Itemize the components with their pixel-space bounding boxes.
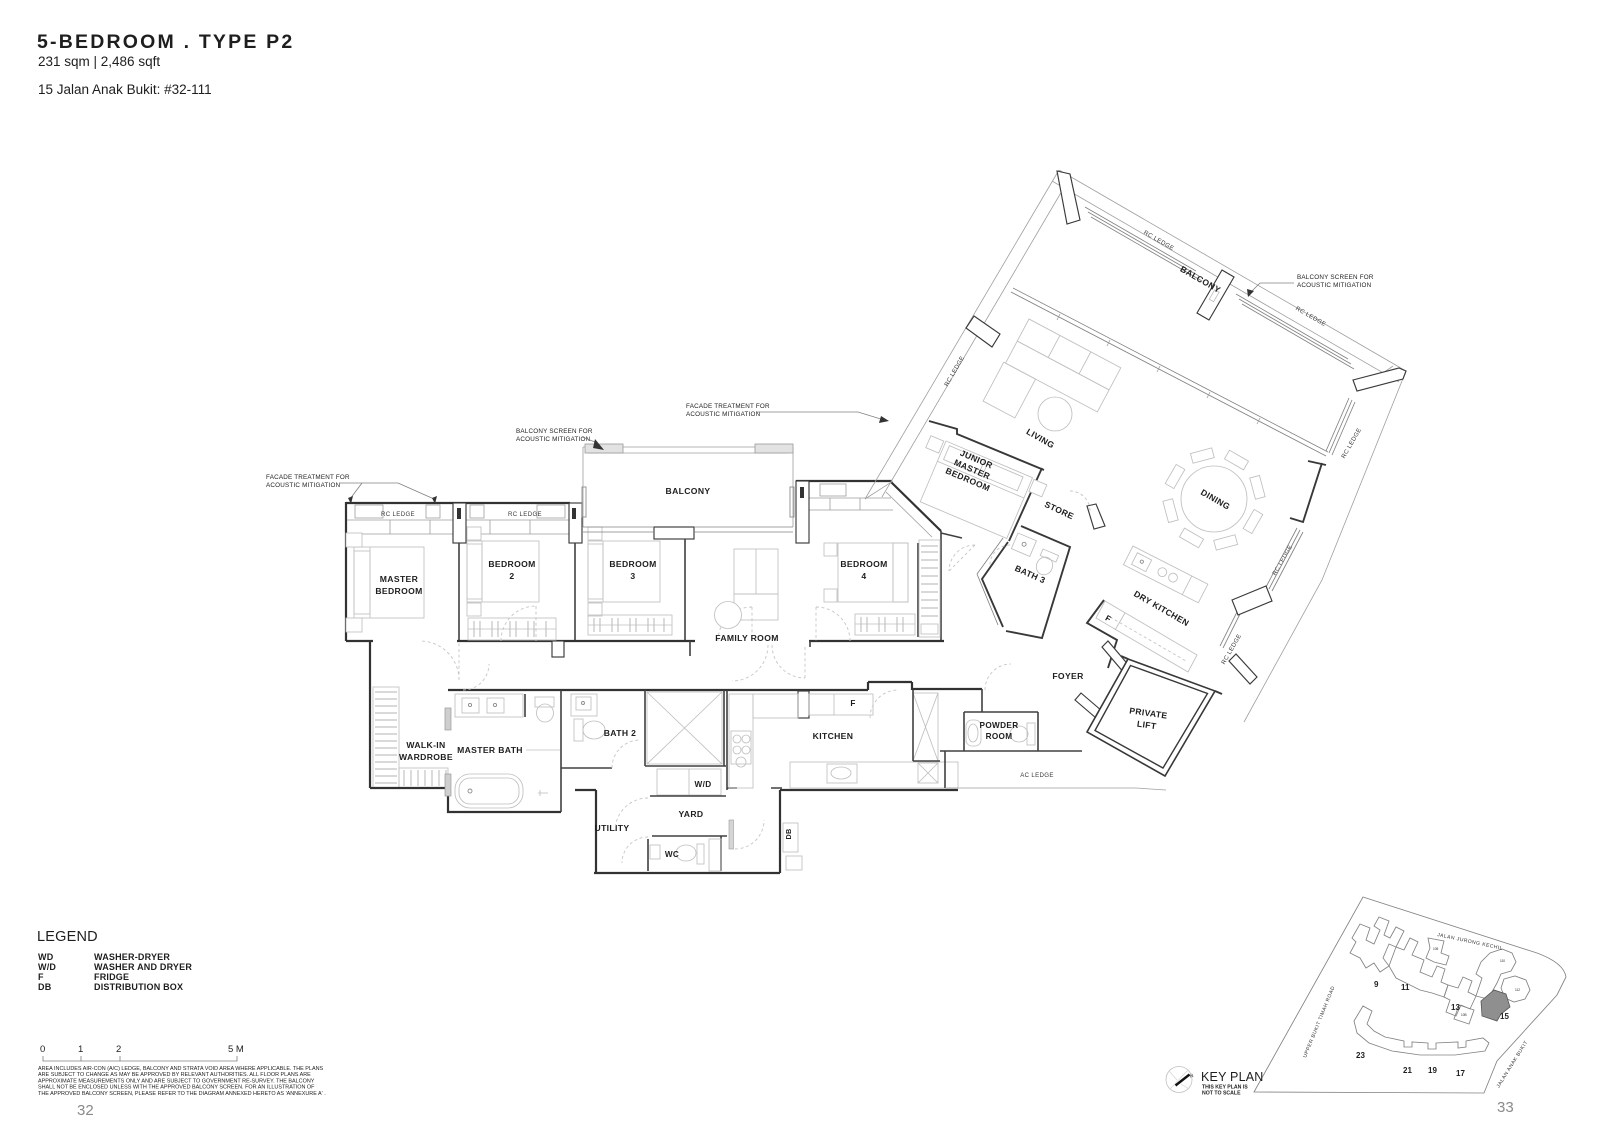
svg-text:W/D: W/D	[695, 780, 712, 789]
svg-text:11: 11	[1401, 983, 1410, 992]
svg-text:WC: WC	[665, 850, 679, 859]
svg-text:10B: 10B	[1461, 1013, 1467, 1017]
svg-text:33: 33	[1497, 1099, 1514, 1116]
svg-text:ACOUSTIC MITIGATION: ACOUSTIC MITIGATION	[516, 436, 591, 443]
svg-text:NOT TO SCALE: NOT TO SCALE	[1202, 1091, 1241, 1097]
svg-text:FOYER: FOYER	[1052, 671, 1084, 681]
svg-text:ARE SUBJECT TO CHANGE AS MAY B: ARE SUBJECT TO CHANGE AS MAY BE APPROVED…	[38, 1072, 311, 1078]
svg-text:RC LEDGE: RC LEDGE	[381, 511, 415, 518]
svg-text:BEDROOM: BEDROOM	[840, 559, 887, 569]
svg-text:105: 105	[1433, 947, 1439, 951]
svg-text:BEDROOM: BEDROOM	[609, 559, 656, 569]
svg-text:19: 19	[1428, 1066, 1437, 1075]
svg-text:DB: DB	[784, 828, 793, 839]
svg-text:21: 21	[1403, 1066, 1412, 1075]
svg-text:4: 4	[861, 571, 866, 581]
svg-text:WASHER AND DRYER: WASHER AND DRYER	[94, 962, 192, 972]
svg-text:5 M: 5 M	[228, 1044, 244, 1055]
svg-text:BALCONY: BALCONY	[666, 486, 711, 496]
svg-text:YARD: YARD	[679, 809, 704, 819]
svg-text:BEDROOM: BEDROOM	[375, 586, 422, 596]
svg-text:POWDER: POWDER	[980, 721, 1019, 730]
svg-text:1: 1	[78, 1044, 83, 1055]
svg-text:BALCONY SCREEN FOR: BALCONY SCREEN FOR	[1297, 274, 1374, 281]
svg-text:WALK-IN: WALK-IN	[406, 740, 445, 750]
svg-text:APPROXIMATE MEASUREMENTS ONLY: APPROXIMATE MEASUREMENTS ONLY AND ARE SU…	[38, 1078, 315, 1084]
svg-text:DISTRIBUTION BOX: DISTRIBUTION BOX	[94, 982, 183, 992]
svg-text:DB: DB	[38, 982, 52, 992]
svg-text:MASTER: MASTER	[380, 574, 419, 584]
svg-text:ACOUSTIC MITIGATION: ACOUSTIC MITIGATION	[686, 411, 761, 418]
svg-text:15 Jalan Anak Bukit: #32-111: 15 Jalan Anak Bukit: #32-111	[38, 82, 212, 97]
svg-text:SHALL NOT BE ENCLOSED UNLESS W: SHALL NOT BE ENCLOSED UNLESS WITH THE AP…	[38, 1085, 315, 1091]
svg-text:FAMILY ROOM: FAMILY ROOM	[715, 633, 779, 643]
svg-text:0: 0	[40, 1044, 45, 1055]
svg-text:BATH 2: BATH 2	[604, 728, 637, 738]
svg-text:17: 17	[1456, 1069, 1465, 1078]
svg-text:32: 32	[77, 1102, 94, 1119]
svg-text:9: 9	[1374, 980, 1379, 989]
svg-text:F: F	[850, 699, 855, 708]
svg-text:KITCHEN: KITCHEN	[813, 731, 854, 741]
svg-text:FACADE TREATMENT FOR: FACADE TREATMENT FOR	[266, 474, 350, 481]
svg-text:112: 112	[1515, 988, 1520, 992]
svg-text:23: 23	[1356, 1051, 1365, 1060]
svg-text:2: 2	[116, 1044, 121, 1055]
svg-text:FRIDGE: FRIDGE	[94, 972, 129, 982]
svg-text:BEDROOM: BEDROOM	[488, 559, 535, 569]
svg-text:110: 110	[1500, 959, 1505, 963]
svg-text:13: 13	[1451, 1003, 1460, 1012]
svg-text:3: 3	[630, 571, 635, 581]
svg-text:KEY PLAN: KEY PLAN	[1201, 1070, 1264, 1084]
svg-text:BALCONY SCREEN FOR: BALCONY SCREEN FOR	[516, 428, 593, 435]
svg-text:ROOM: ROOM	[986, 732, 1013, 741]
svg-text:231 sqm | 2,486 sqft: 231 sqm | 2,486 sqft	[38, 54, 160, 69]
svg-text:WD: WD	[38, 952, 54, 962]
svg-text:F: F	[38, 972, 44, 982]
svg-text:2: 2	[509, 571, 514, 581]
svg-text:ACOUSTIC MITIGATION: ACOUSTIC MITIGATION	[1297, 282, 1372, 289]
svg-text:THE APPROVED BALCONY SCREEN, P: THE APPROVED BALCONY SCREEN, PLEASE REFE…	[38, 1091, 326, 1097]
svg-text:FACADE TREATMENT FOR: FACADE TREATMENT FOR	[686, 403, 770, 410]
svg-text:WASHER-DRYER: WASHER-DRYER	[94, 952, 170, 962]
svg-text:RC LEDGE: RC LEDGE	[508, 511, 542, 518]
svg-text:AC LEDGE: AC LEDGE	[1020, 772, 1054, 779]
svg-text:5-BEDROOM . TYPE P2: 5-BEDROOM . TYPE P2	[37, 31, 294, 53]
svg-text:WARDROBE: WARDROBE	[399, 752, 453, 762]
svg-text:AREA INCLUDES AIR-CON (A/C) LE: AREA INCLUDES AIR-CON (A/C) LEDGE, BALCO…	[38, 1066, 324, 1072]
svg-text:UTILITY: UTILITY	[595, 823, 630, 833]
svg-text:15: 15	[1500, 1012, 1509, 1021]
svg-text:LEGEND: LEGEND	[37, 929, 98, 945]
svg-text:ACOUSTIC MITIGATION: ACOUSTIC MITIGATION	[266, 482, 341, 489]
svg-text:MASTER BATH: MASTER BATH	[457, 745, 523, 755]
svg-text:W/D: W/D	[38, 962, 56, 972]
